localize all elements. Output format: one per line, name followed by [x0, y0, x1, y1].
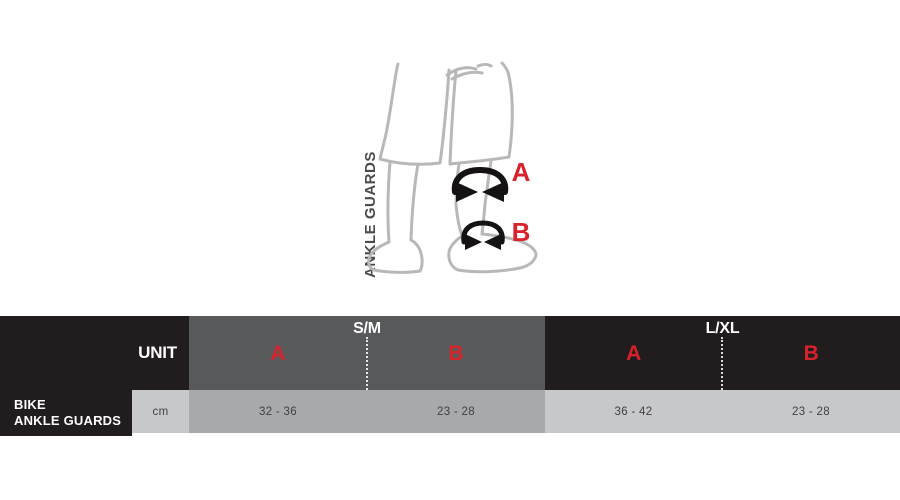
group-name-sm: S/M	[189, 320, 545, 338]
back-lower-leg	[388, 162, 418, 242]
back-shoe	[369, 240, 423, 272]
value-cell-sm-b: 23 - 28	[367, 390, 545, 433]
product-row-label: BIKE ANKLE GUARDS	[0, 390, 132, 436]
column-header-sm-a: A	[189, 339, 367, 369]
value-cell-lxl-a: 36 - 42	[545, 390, 722, 433]
figure-marker-a: A	[506, 158, 536, 186]
back-shorts-outline	[380, 64, 449, 164]
measure-band-a	[455, 170, 505, 202]
table-corner-unit-cell: UNIT	[0, 316, 189, 390]
dotted-separator-sm	[366, 337, 368, 390]
size-guide-page: ANKLE GUARDS	[0, 0, 900, 500]
front-shorts-outline	[450, 63, 512, 164]
hand-strokes	[447, 65, 491, 80]
figure-marker-b: B	[506, 218, 536, 246]
value-cell-lxl-b: 23 - 28	[722, 390, 900, 433]
column-header-lxl-b: B	[723, 339, 900, 369]
dotted-separator-lxl	[721, 337, 723, 390]
product-label-line1: BIKE	[14, 397, 132, 413]
group-name-lxl: L/XL	[545, 320, 900, 338]
column-header-sm-b: B	[367, 339, 545, 369]
unit-header-label: UNIT	[138, 343, 177, 363]
value-cell-sm-a: 32 - 36	[189, 390, 367, 433]
unit-value-cell: cm	[132, 390, 189, 433]
column-header-lxl-a: A	[545, 339, 723, 369]
product-label-line2: ANKLE GUARDS	[14, 413, 132, 429]
